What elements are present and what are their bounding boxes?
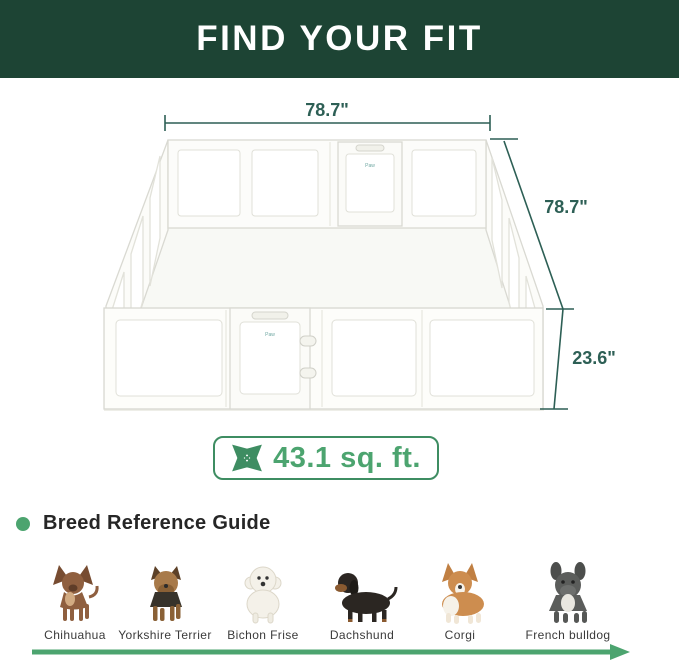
- breed-label: Corgi: [405, 628, 515, 642]
- height-dimension: [540, 309, 568, 409]
- expand-arrows-icon: [231, 444, 263, 472]
- header-banner: FIND YOUR FIT: [0, 0, 679, 78]
- area-badge-label: 43.1 sq. ft.: [273, 442, 421, 475]
- breed-guide-header: Breed Reference Guide: [16, 512, 271, 535]
- breed-item-dachshund: Dachshund: [307, 561, 417, 642]
- breed-label: Bichon Frise: [208, 628, 318, 642]
- breed-item-yorkshire-terrier: Yorkshire Terrier: [110, 561, 220, 642]
- playpen-floor: [110, 227, 540, 311]
- playpen-back-door: Paw: [338, 142, 402, 226]
- right-arrow-icon: [0, 641, 679, 663]
- height-dimension-label: 23.6": [572, 348, 616, 368]
- playpen-back-wall: Paw: [168, 140, 486, 228]
- door-latch-knob-top: [300, 336, 316, 346]
- depth-dimension-label: 78.7": [544, 197, 588, 217]
- breed-guide-title: Breed Reference Guide: [43, 512, 271, 535]
- breed-label: Yorkshire Terrier: [110, 628, 220, 642]
- bichon-frise-image: [223, 561, 303, 625]
- breed-item-french-bulldog: French bulldog: [513, 561, 623, 642]
- playpen-dimension-diagram: Paw Paw: [0, 78, 679, 434]
- playpen-front-wall: Paw: [104, 308, 544, 411]
- chihuahua-image: [35, 561, 115, 625]
- green-dot-icon: [16, 517, 30, 531]
- dachshund-image: [320, 561, 404, 625]
- breed-item-bichon-frise: Bichon Frise: [208, 561, 318, 642]
- corgi-image: [418, 561, 502, 625]
- product-infographic: FIND YOUR FIT: [0, 0, 679, 663]
- breed-label: Dachshund: [307, 628, 417, 642]
- front-door-handle-slot: [252, 312, 288, 319]
- area-badge: 43.1 sq. ft.: [213, 436, 439, 480]
- breed-label: French bulldog: [513, 628, 623, 642]
- page-title: FIND YOUR FIT: [196, 19, 483, 59]
- back-door-handle-slot: [356, 145, 384, 151]
- french-bulldog-image: [526, 561, 610, 625]
- width-dimension-label: 78.7": [305, 100, 349, 120]
- door-latch-knob-bottom: [300, 368, 316, 378]
- yorkshire-terrier-image: [125, 561, 205, 625]
- breed-item-corgi: Corgi: [405, 561, 515, 642]
- back-door-brand-logo: Paw: [365, 163, 375, 169]
- playpen-front-door: Paw: [230, 308, 316, 409]
- front-door-brand-logo: Paw: [265, 332, 275, 338]
